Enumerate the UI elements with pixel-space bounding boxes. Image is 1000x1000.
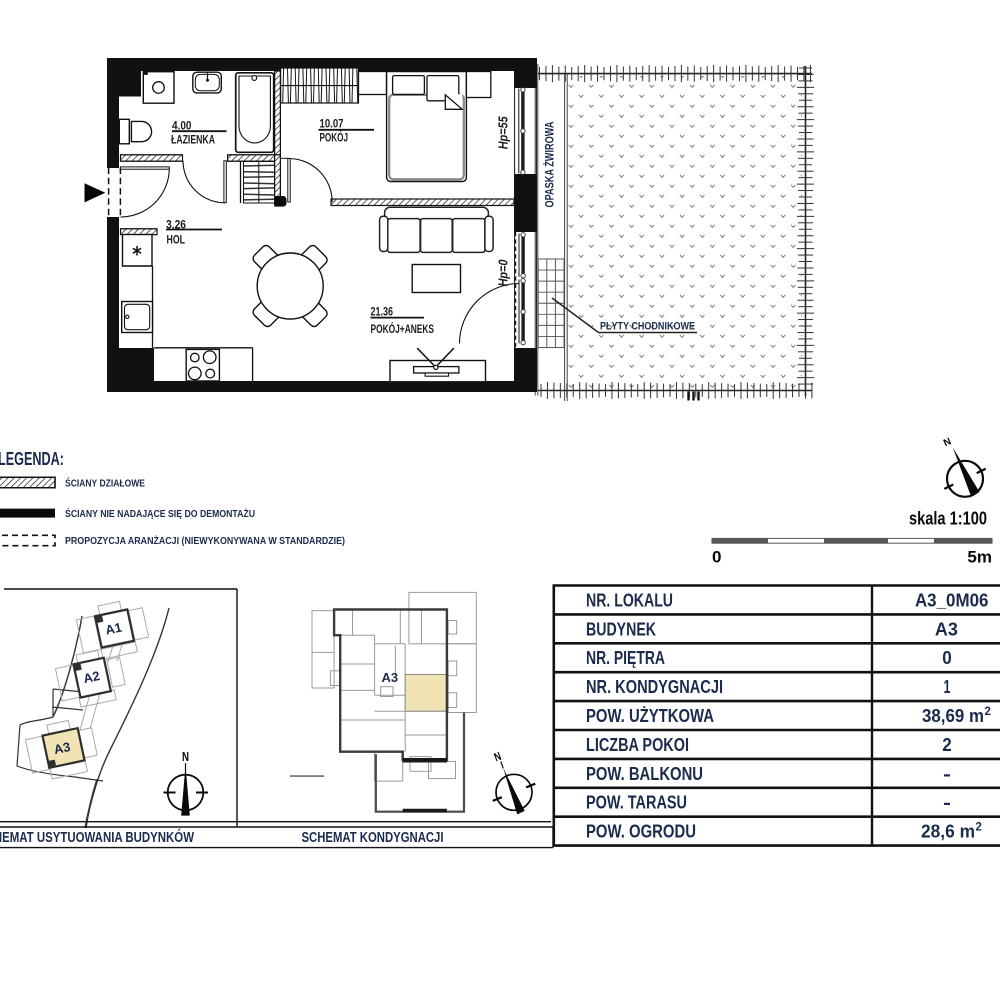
svg-text:SCHEMAT KONDYGNACJI: SCHEMAT KONDYGNACJI <box>302 830 444 846</box>
svg-text:LICZBA POKOI: LICZBA POKOI <box>586 734 689 755</box>
svg-text:OPASKA ŻWIROWA: OPASKA ŻWIROWA <box>544 122 557 208</box>
svg-text:PROPOZYCJA ARANŻACJI (NIEWYKON: PROPOZYCJA ARANŻACJI (NIEWYKONYWANA W ST… <box>65 534 345 547</box>
svg-text:A3: A3 <box>935 618 958 639</box>
svg-text:2: 2 <box>942 734 952 755</box>
svg-text:0: 0 <box>942 647 952 668</box>
svg-text:10.07: 10.07 <box>320 117 344 131</box>
svg-text:POW. TARASU: POW. TARASU <box>586 792 687 813</box>
svg-text:SCHEMAT USYTUOWANIA BUDYNKÓW: SCHEMAT USYTUOWANIA BUDYNKÓW <box>0 828 194 846</box>
svg-text:4.00: 4.00 <box>172 118 192 132</box>
svg-text:-: - <box>943 792 951 813</box>
svg-text:0: 0 <box>712 548 721 567</box>
svg-text:HOL: HOL <box>167 234 186 246</box>
svg-text:POW. BALKONU: POW. BALKONU <box>586 763 703 784</box>
svg-text:A3_0M06: A3_0M06 <box>915 589 989 610</box>
svg-text:ŁAZIENKA: ŁAZIENKA <box>171 134 215 146</box>
svg-text:38,69 m: 38,69 m <box>922 705 984 726</box>
svg-text:NR. PIĘTRA: NR. PIĘTRA <box>586 647 665 668</box>
svg-text:ŚCIANY NIE NADAJĄCE SIĘ DO DEM: ŚCIANY NIE NADAJĄCE SIĘ DO DEMONTAŻU <box>65 507 255 520</box>
svg-text:POW. UŻYTKOWA: POW. UŻYTKOWA <box>586 705 714 726</box>
svg-text:-: - <box>943 763 951 784</box>
svg-text:21.36: 21.36 <box>371 304 394 318</box>
svg-text:Hp=55: Hp=55 <box>497 115 511 149</box>
svg-text:PŁYTY CHODNIKOWE: PŁYTY CHODNIKOWE <box>600 321 695 333</box>
svg-text:N: N <box>182 749 189 764</box>
svg-text:5m: 5m <box>967 548 992 567</box>
svg-text:skala 1:100: skala 1:100 <box>909 509 987 529</box>
svg-text:2: 2 <box>976 822 982 834</box>
svg-text:ŚCIANY DZIAŁOWE: ŚCIANY DZIAŁOWE <box>65 477 145 490</box>
svg-text:NR. KONDYGNACJI: NR. KONDYGNACJI <box>586 676 723 697</box>
svg-text:Hp=0: Hp=0 <box>497 259 511 286</box>
svg-text:2: 2 <box>985 706 991 718</box>
svg-text:POW. OGRODU: POW. OGRODU <box>586 821 696 842</box>
svg-text:1: 1 <box>944 676 951 697</box>
svg-text:POKÓJ: POKÓJ <box>320 132 349 145</box>
svg-text:POKÓJ+ANEKS: POKÓJ+ANEKS <box>371 323 435 336</box>
svg-text:28,6 m: 28,6 m <box>921 821 975 842</box>
svg-text:A3: A3 <box>382 670 399 685</box>
svg-text:BUDYNEK: BUDYNEK <box>586 618 656 639</box>
svg-text:NR. LOKALU: NR. LOKALU <box>586 589 673 610</box>
svg-text:LEGENDA:: LEGENDA: <box>0 449 64 469</box>
